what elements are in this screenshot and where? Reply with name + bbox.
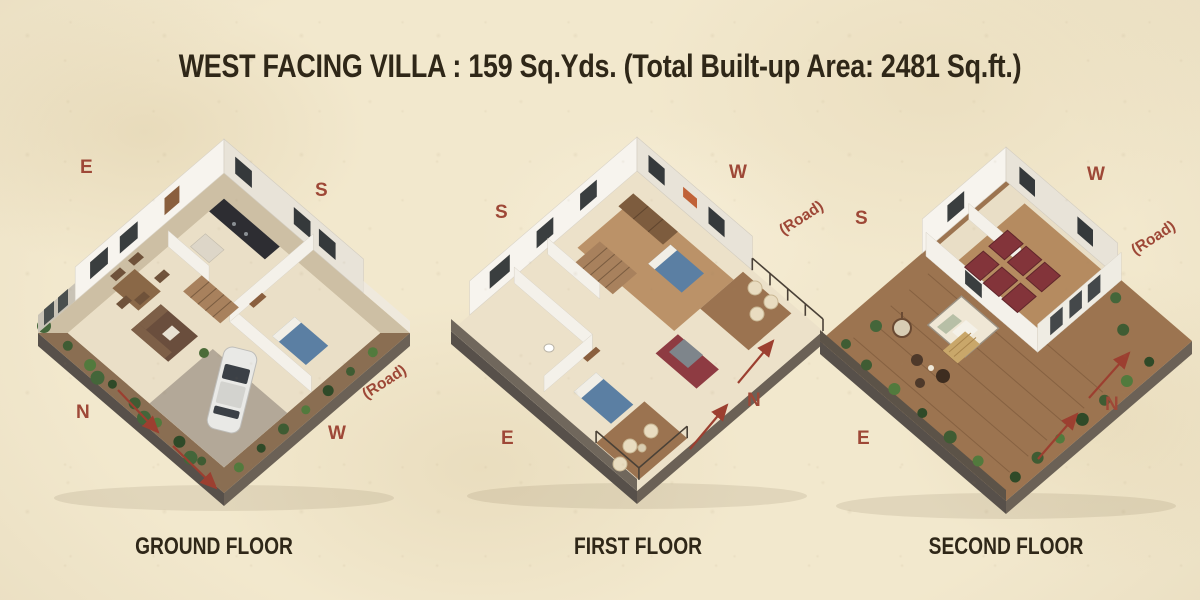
ff-compass-south: S — [495, 203, 508, 222]
sf-compass-east: E — [857, 429, 870, 448]
sf-compass-north: N — [1105, 395, 1119, 414]
sf-compass-south: S — [855, 209, 868, 228]
ground-floor-label: GROUND FLOOR — [118, 533, 310, 561]
ff-compass-east: E — [501, 429, 514, 448]
ground-floor-plan-illustration — [24, 128, 424, 523]
second-floor-plan-svg — [806, 136, 1200, 531]
ground-floor-plan-svg — [24, 128, 424, 523]
first-floor-label: FIRST FLOOR — [542, 533, 734, 561]
gf-compass-south: S — [315, 181, 328, 200]
gf-compass-east: E — [80, 158, 93, 177]
gf-compass-north: N — [76, 403, 90, 422]
ff-compass-north: N — [747, 391, 761, 410]
gf-compass-west: W — [328, 424, 346, 443]
brochure-canvas: WEST FACING VILLA : 159 Sq.Yds. (Total B… — [0, 0, 1200, 600]
ff-compass-west: W — [729, 163, 747, 182]
second-floor-plan-illustration — [806, 136, 1200, 531]
page-title: WEST FACING VILLA : 159 Sq.Yds. (Total B… — [96, 48, 1104, 85]
sf-compass-west: W — [1087, 165, 1105, 184]
second-floor-label: SECOND FLOOR — [910, 533, 1102, 561]
first-floor-plan-svg — [437, 126, 837, 521]
first-floor-plan-illustration — [437, 126, 837, 521]
gf-potted-plant — [199, 348, 209, 358]
